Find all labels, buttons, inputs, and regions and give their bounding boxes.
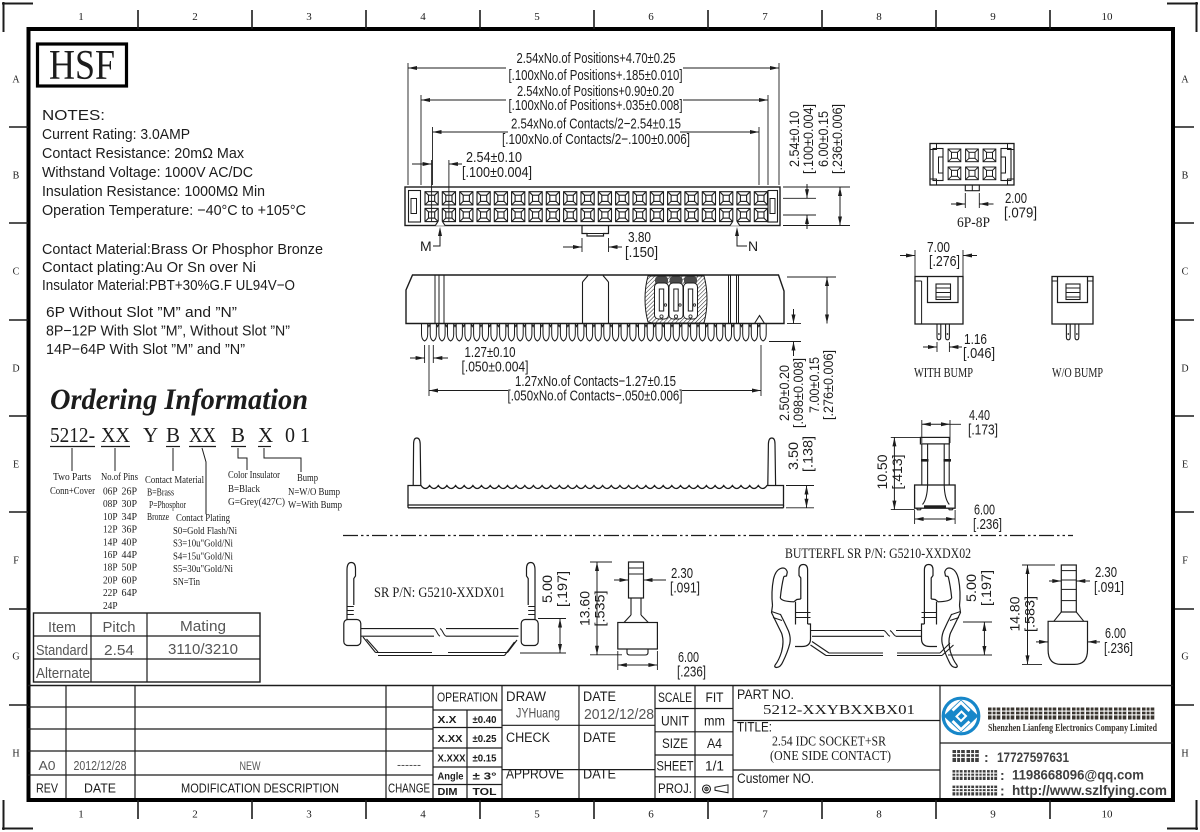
svg-text:DIM: DIM	[438, 786, 458, 798]
svg-text:Bump: Bump	[297, 473, 318, 484]
svg-text:4: 4	[420, 809, 426, 821]
svg-text:9: 9	[990, 11, 996, 23]
svg-text:X.XXX: X.XXX	[438, 753, 466, 765]
svg-text:C: C	[1182, 267, 1189, 278]
svg-text:Bronze: Bronze	[147, 512, 169, 523]
svg-text:Standard: Standard	[36, 642, 88, 659]
svg-text:G: G	[1181, 652, 1188, 663]
svg-text:[.236]: [.236]	[1104, 640, 1133, 657]
svg-text:E: E	[1182, 460, 1188, 471]
svg-text:12P: 12P	[103, 525, 118, 536]
svg-text:XX: XX	[101, 423, 130, 447]
svg-text::: :	[984, 749, 989, 765]
svg-text:26P: 26P	[122, 487, 138, 498]
svg-text:2.54xNo.of Positions+4.70±0.2: 2.54xNo.of Positions+4.70±0.25	[517, 50, 676, 67]
svg-text:G=Grey(427C): G=Grey(427C)	[228, 497, 285, 508]
svg-text:Color Insulator: Color Insulator	[228, 470, 280, 481]
svg-text:3: 3	[306, 809, 312, 821]
svg-text:Item: Item	[48, 619, 76, 636]
svg-text:C: C	[13, 267, 20, 278]
svg-text:WITH BUMP: WITH BUMP	[914, 366, 973, 381]
svg-text:JYHuang: JYHuang	[516, 705, 560, 721]
svg-text:20P: 20P	[103, 575, 118, 586]
svg-text:[.138]: [.138]	[800, 436, 816, 472]
svg-text:http://www.szlfying.com: http://www.szlfying.com	[1012, 782, 1167, 798]
svg-text:9: 9	[990, 809, 996, 821]
svg-text:SHEET: SHEET	[657, 759, 694, 774]
svg-text:1: 1	[78, 11, 84, 23]
svg-text:44P: 44P	[122, 550, 138, 561]
svg-text:CHECK: CHECK	[506, 730, 550, 745]
svg-text:B=Black: B=Black	[228, 484, 261, 495]
svg-text:24P: 24P	[103, 601, 118, 612]
svg-text:SR P/N: G5210-XXDX01: SR P/N: G5210-XXDX01	[374, 585, 505, 601]
svg-text:[.100±0.004]: [.100±0.004]	[800, 104, 816, 174]
svg-text:XX: XX	[189, 423, 216, 447]
svg-text:B: B	[13, 171, 20, 182]
svg-text:Current Rating: 3.0AMP: Current Rating: 3.0AMP	[42, 126, 190, 143]
svg-text:5212-XXYBXXBX01: 5212-XXYBXXBX01	[763, 703, 915, 718]
svg-text:A: A	[12, 75, 20, 86]
svg-text:1/1: 1/1	[705, 758, 724, 774]
svg-text:6: 6	[648, 11, 654, 23]
svg-text:10P: 10P	[103, 512, 118, 523]
svg-text:------: ------	[397, 757, 421, 772]
svg-text:DRAW: DRAW	[506, 689, 546, 704]
svg-text:[.197]: [.197]	[978, 570, 994, 606]
svg-text:Insulator Material:PBT+30%G.F: Insulator Material:PBT+30%G.F UL94V−O	[42, 277, 295, 294]
svg-text:3: 3	[306, 11, 312, 23]
svg-text:E: E	[13, 460, 19, 471]
svg-text:[.100xNo.of Positions+.035±0.: [.100xNo.of Positions+.035±0.008]	[509, 97, 683, 114]
svg-text:A4: A4	[707, 735, 722, 751]
svg-text:PROJ.: PROJ.	[658, 781, 692, 796]
svg-text:D: D	[12, 364, 19, 375]
svg-text:[.150]: [.150]	[625, 244, 658, 261]
svg-text:[.276]: [.276]	[929, 253, 960, 270]
svg-text:FIT: FIT	[706, 689, 724, 705]
svg-text:Customer NO.: Customer NO.	[737, 771, 814, 786]
svg-text:64P: 64P	[122, 588, 138, 599]
svg-text:OPERATION: OPERATION	[437, 690, 498, 705]
svg-text:H: H	[12, 749, 19, 760]
svg-text:X.X: X.X	[438, 714, 457, 726]
svg-text:Mating: Mating	[180, 618, 226, 635]
svg-text:No.of Pins: No.of Pins	[101, 472, 138, 483]
svg-text:N=W/O Bump: N=W/O Bump	[288, 487, 340, 498]
svg-text:SCALE: SCALE	[658, 690, 692, 705]
svg-text:Shenzhen Lianfeng Electronics: Shenzhen Lianfeng Electronics Company Li…	[988, 723, 1157, 734]
svg-text:Angle: Angle	[438, 771, 464, 783]
svg-text:[.100xNo.of Contacts/2−.100±0: [.100xNo.of Contacts/2−.100±0.006]	[502, 131, 690, 148]
svg-text:Ordering Information: Ordering Information	[50, 383, 308, 416]
svg-text:6: 6	[648, 809, 654, 821]
svg-text:10: 10	[1102, 809, 1114, 821]
svg-text:8: 8	[876, 11, 882, 23]
svg-text:SN=Tin: SN=Tin	[173, 577, 201, 588]
svg-text:[.079]: [.079]	[1004, 205, 1037, 222]
svg-text::: :	[1000, 783, 1005, 799]
svg-text:±0.40: ±0.40	[473, 714, 497, 726]
svg-text:P=Phosphor: P=Phosphor	[149, 500, 186, 511]
svg-text:±0.25: ±0.25	[473, 733, 497, 745]
svg-text:[.197]: [.197]	[554, 571, 570, 607]
svg-text:NOTES:: NOTES:	[42, 107, 105, 124]
svg-text:50P: 50P	[122, 563, 138, 574]
svg-text:2: 2	[192, 809, 198, 821]
svg-text:Contact Resistance: 20mΩ Ma: Contact Resistance: 20mΩ Max	[42, 145, 244, 162]
svg-text:Alternate: Alternate	[36, 665, 90, 682]
svg-text:08P: 08P	[103, 499, 118, 510]
svg-text:40P: 40P	[122, 537, 138, 548]
svg-text:1: 1	[78, 809, 84, 821]
svg-text:30P: 30P	[122, 499, 138, 510]
svg-text:W=With Bump: W=With Bump	[288, 500, 342, 511]
svg-text:0 1: 0 1	[285, 423, 310, 447]
svg-text:[.098±0.008]: [.098±0.008]	[790, 358, 806, 428]
svg-text:[.091]: [.091]	[1094, 579, 1124, 596]
svg-text:10.50: 10.50	[874, 454, 890, 489]
svg-text:DATE: DATE	[583, 689, 616, 704]
svg-text:DATE: DATE	[583, 730, 616, 745]
svg-text:6P Without Slot ”M” and ”: 6P Without Slot ”M” and ”N”	[46, 304, 237, 321]
svg-text:X: X	[258, 423, 273, 447]
svg-text:16P: 16P	[103, 550, 118, 561]
svg-text:(ONE SIDE CONTACT): (ONE SIDE CONTACT)	[770, 748, 891, 763]
svg-text:[.236±0.006]: [.236±0.006]	[829, 104, 845, 174]
svg-text:Operation Temperature: −40°C: Operation Temperature: −40°C to +105°C	[42, 202, 306, 219]
svg-text:S4=15u"Gold/Ni: S4=15u"Gold/Ni	[173, 551, 233, 562]
svg-text:2.54: 2.54	[104, 642, 134, 659]
svg-text:4: 4	[420, 11, 426, 23]
svg-text:Contact plating:Au Or Sn o: Contact plating:Au Or Sn over Ni	[42, 259, 256, 276]
svg-text:[.236]: [.236]	[973, 516, 1002, 533]
svg-text:N: N	[748, 238, 758, 254]
svg-text:5: 5	[534, 11, 540, 23]
svg-text:M: M	[420, 238, 432, 254]
svg-text:±0.15: ±0.15	[473, 753, 497, 765]
svg-text:Conn+Cover: Conn+Cover	[50, 486, 95, 497]
svg-text:S0=Gold Flash/Ni: S0=Gold Flash/Ni	[173, 526, 237, 537]
svg-text:W/O BUMP: W/O BUMP	[1052, 366, 1103, 381]
svg-text:[.276±0.006]: [.276±0.006]	[820, 350, 836, 420]
svg-text:[.583]: [.583]	[1022, 596, 1038, 632]
svg-text:14.80: 14.80	[1007, 596, 1023, 631]
svg-text:± 3°: ± 3°	[473, 771, 497, 783]
svg-text:B=Brass: B=Brass	[147, 488, 174, 499]
svg-text:MODIFICATION DESCRIPTION: MODIFICATION DESCRIPTION	[181, 781, 339, 796]
svg-text:17727597631: 17727597631	[997, 749, 1069, 765]
svg-text:Y: Y	[143, 423, 158, 447]
svg-text:S5=30u"Gold/Ni: S5=30u"Gold/Ni	[173, 564, 233, 575]
svg-text:Two Parts: Two Parts	[53, 472, 91, 483]
svg-text:NEW: NEW	[240, 759, 262, 773]
svg-text:2.54 IDC SOCKET+SR: 2.54 IDC SOCKET+SR	[772, 734, 886, 749]
svg-text:Contact Material: Contact Material	[145, 475, 204, 486]
svg-text:5: 5	[534, 809, 540, 821]
svg-text:Contact Plating: Contact Plating	[176, 513, 231, 524]
svg-text:10: 10	[1102, 11, 1114, 23]
svg-text:SIZE: SIZE	[662, 736, 688, 751]
svg-text:2012/12/28: 2012/12/28	[74, 758, 127, 773]
svg-text:[.091]: [.091]	[670, 580, 700, 597]
svg-text:B: B	[231, 423, 245, 447]
svg-text:G: G	[12, 652, 19, 663]
svg-text:8P−12P With Slot ”M”, With: 8P−12P With Slot ”M”, Without Slot ”N”	[46, 323, 290, 340]
svg-text:2.54xNo.of Contacts/2−2.54±0.: 2.54xNo.of Contacts/2−2.54±0.15	[511, 116, 681, 133]
svg-text:60P: 60P	[122, 575, 138, 586]
svg-text:H: H	[1181, 749, 1188, 760]
svg-text:6P-8P: 6P-8P	[957, 215, 990, 231]
svg-text:B: B	[1182, 171, 1189, 182]
svg-text:3110/3210: 3110/3210	[168, 641, 238, 658]
svg-text:34P: 34P	[122, 512, 138, 523]
svg-text:5.00: 5.00	[539, 575, 555, 603]
svg-text:TITLE:: TITLE:	[737, 720, 772, 735]
svg-text:Pitch: Pitch	[103, 619, 136, 636]
svg-text:F: F	[1182, 556, 1188, 567]
svg-text:2: 2	[192, 11, 198, 23]
svg-text:[.050xNo.of Contacts−.050±0.0: [.050xNo.of Contacts−.050±0.006]	[508, 388, 683, 405]
svg-text:[.046]: [.046]	[963, 345, 995, 362]
svg-text:HSF: HSF	[49, 43, 115, 89]
svg-text:14P: 14P	[103, 537, 118, 548]
svg-text:X.XX: X.XX	[438, 733, 463, 745]
svg-text:1198668096@qq.com: 1198668096@qq.com	[1012, 767, 1144, 783]
svg-text:5.00: 5.00	[963, 574, 979, 602]
svg-text:F: F	[13, 556, 19, 567]
svg-text:A0: A0	[39, 758, 56, 773]
svg-text:B: B	[166, 423, 180, 447]
svg-text:5212-: 5212-	[50, 423, 95, 447]
svg-text:D: D	[1181, 364, 1188, 375]
svg-text:A: A	[1181, 75, 1189, 86]
svg-text:Insulation Resistance: 1000M: Insulation Resistance: 1000MΩ Min	[42, 183, 265, 200]
svg-text:mm: mm	[704, 713, 725, 729]
svg-text:18P: 18P	[103, 563, 118, 574]
svg-text:PART NO.: PART NO.	[737, 687, 794, 702]
svg-text:36P: 36P	[122, 525, 138, 536]
svg-text:[.173]: [.173]	[968, 422, 998, 439]
svg-text:14P−64P With Slot ”M” and: 14P−64P With Slot ”M” and ”N”	[46, 341, 245, 358]
svg-text:[.100xNo.of Positions+.185±0.: [.100xNo.of Positions+.185±0.010]	[509, 67, 683, 84]
svg-text:7: 7	[762, 809, 768, 821]
svg-text:BUTTERFL SR P/N: G5210-XXDX02: BUTTERFL SR P/N: G5210-XXDX02	[785, 546, 971, 562]
svg-text:7: 7	[762, 11, 768, 23]
svg-text:DATE: DATE	[583, 767, 616, 782]
svg-text:13.60: 13.60	[577, 591, 593, 626]
svg-text:CHANGE: CHANGE	[388, 781, 430, 796]
svg-text:[.236]: [.236]	[677, 664, 706, 681]
svg-text:[.100±0.004]: [.100±0.004]	[462, 164, 532, 181]
svg-text:[.535]: [.535]	[592, 591, 608, 627]
svg-text:UNIT: UNIT	[661, 714, 689, 729]
svg-text:8: 8	[876, 809, 882, 821]
svg-text:REV: REV	[36, 781, 58, 796]
svg-text:2012/12/28: 2012/12/28	[584, 706, 654, 723]
svg-text:APPROVE: APPROVE	[506, 767, 564, 782]
svg-text:TOL: TOL	[473, 786, 498, 798]
svg-text::: :	[1000, 767, 1005, 783]
svg-text:Withstand Voltage: 1000V AC: Withstand Voltage: 1000V AC/DC	[42, 164, 253, 181]
svg-text:Contact Material:Brass Or P: Contact Material:Brass Or Phosphor Bronz…	[42, 241, 323, 258]
svg-text:S3=10u"Gold/Ni: S3=10u"Gold/Ni	[173, 539, 233, 550]
svg-text:22P: 22P	[103, 588, 118, 599]
svg-text:06P: 06P	[103, 487, 118, 498]
svg-text:DATE: DATE	[84, 781, 116, 796]
svg-text:[.413]: [.413]	[889, 454, 905, 489]
